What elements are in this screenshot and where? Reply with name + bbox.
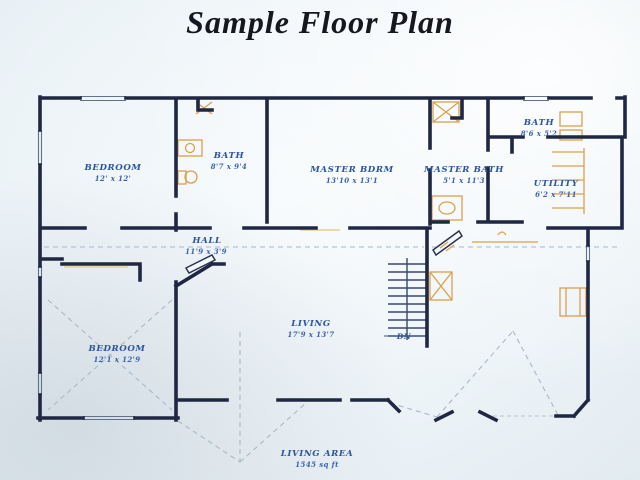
room-dims-bedroom1: 12' x 12' [95, 174, 131, 183]
stairs-direction: DN [384, 332, 425, 341]
window-lines [39, 97, 590, 420]
bath-toilet [185, 171, 197, 183]
room-dims-master-bath: 5'1 x 11'3 [443, 176, 485, 185]
dn-label: DN [396, 332, 412, 341]
room-dims-bath2: 8'6 x 5'2 [521, 129, 557, 138]
floor-plan-drawing: DN BEDROOM 12' x 12' BATH 8'7 x 9'4 MAST… [0, 0, 640, 480]
room-label-living: LIVING [290, 319, 331, 329]
bath-sink-counter [178, 140, 202, 156]
room-dims-living: 17'9 x 13'7 [288, 330, 335, 339]
living-area-value: 1545 sq ft [295, 460, 339, 469]
room-label-master-bdrm: MASTER BDRM [309, 165, 393, 175]
room-dims-bath1: 8'7 x 9'4 [211, 162, 247, 171]
walls [38, 97, 625, 420]
staircase [388, 258, 426, 340]
bath2-fixture [560, 112, 582, 126]
room-label-bedroom1: BEDROOM [83, 163, 141, 173]
living-fireplace [560, 288, 586, 316]
master-bath-vanity [432, 196, 462, 220]
floor-plan-page: Sample Floor Plan [0, 0, 640, 480]
room-label-bedroom2: BEDROOM [87, 344, 145, 354]
room-dims-hall: 11'9 x 3'9 [185, 247, 227, 256]
room-label-master-bath: MASTER BATH [423, 165, 504, 175]
room-dims-master-bdrm: 13'10 x 13'1 [326, 176, 378, 185]
room-labels: BEDROOM 12' x 12' BATH 8'7 x 9'4 MASTER … [83, 118, 578, 364]
living-area-summary: LIVING AREA 1545 sq ft [280, 449, 354, 469]
room-label-bath2: BATH [523, 118, 555, 128]
room-label-utility: UTILITY [534, 179, 579, 189]
door-leaves [186, 231, 462, 273]
hall-annotation-mark [472, 232, 538, 242]
living-area-label: LIVING AREA [280, 449, 354, 459]
room-dims-utility: 6'2 x 7'11 [535, 190, 577, 199]
room-dims-bedroom2: 12'1 x 12'9 [94, 355, 141, 364]
room-label-hall: HALL [191, 236, 221, 246]
room-label-bath1: BATH [213, 151, 245, 161]
